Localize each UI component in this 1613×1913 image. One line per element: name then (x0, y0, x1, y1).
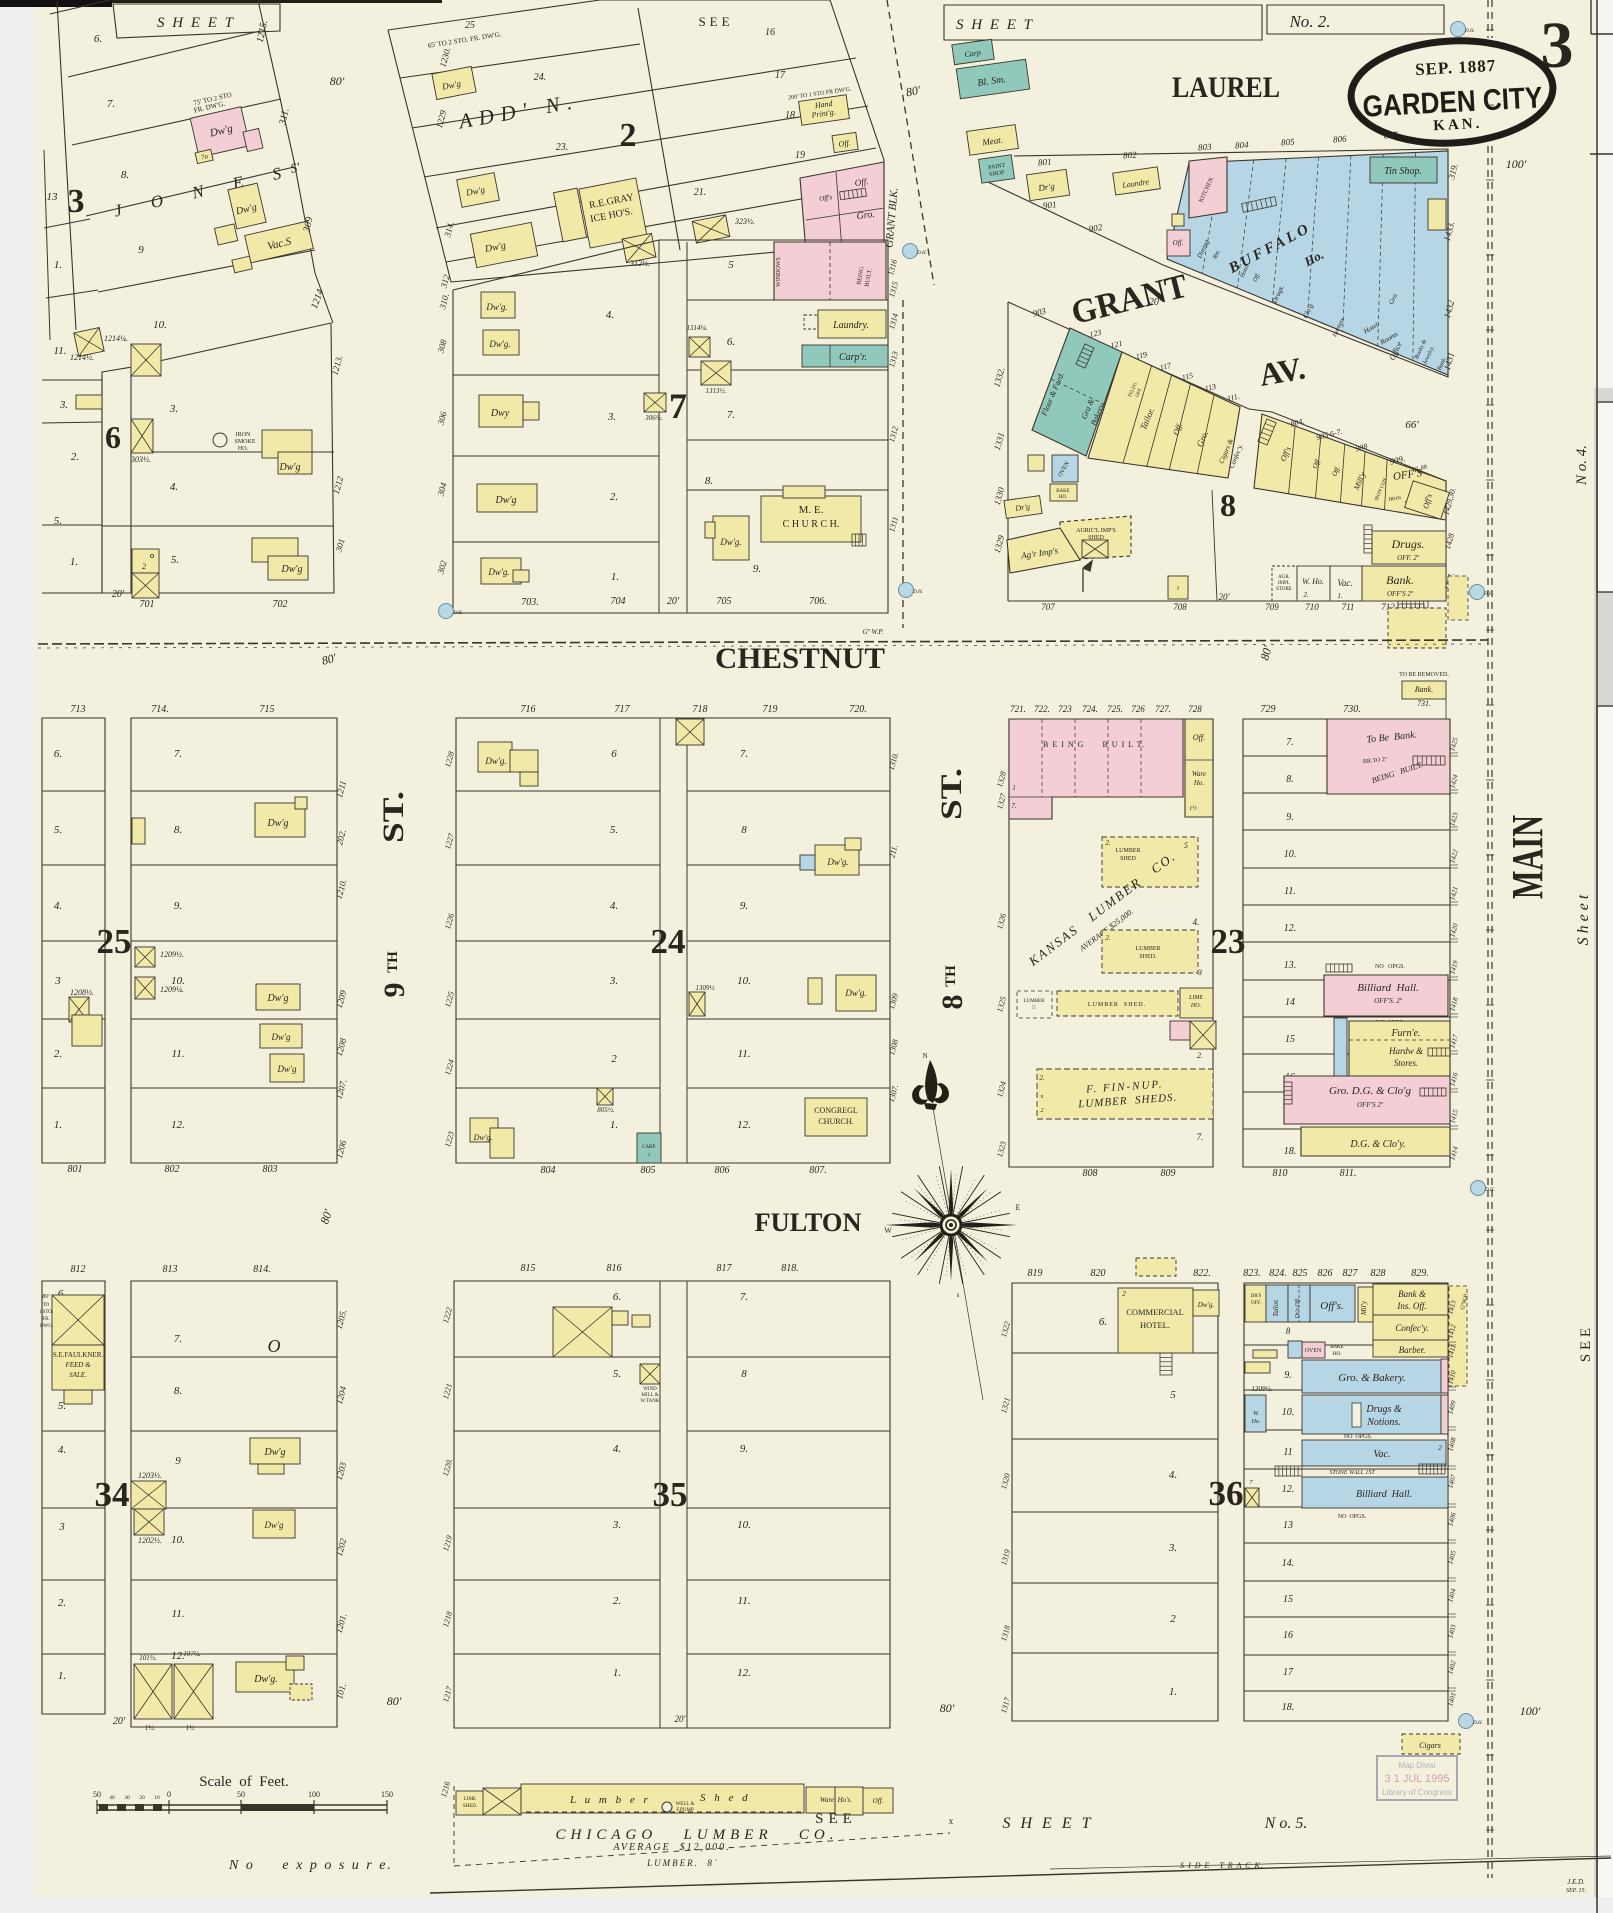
svg-text:6.: 6. (613, 1291, 621, 1303)
svg-text:11.: 11. (172, 1608, 185, 1620)
svg-text:20': 20' (675, 1714, 687, 1724)
svg-text:FULTON: FULTON (755, 1208, 862, 1237)
svg-text:Stores.: Stores. (1394, 1058, 1418, 1068)
svg-text:2.: 2. (1105, 839, 1111, 847)
svg-text:3 1 JUL 1995: 3 1 JUL 1995 (1384, 1773, 1449, 1785)
svg-text:1.: 1. (54, 259, 62, 271)
svg-text:LUMBER. 8´: LUMBER. 8´ (646, 1858, 719, 1868)
svg-text:Drugs &: Drugs & (1365, 1404, 1402, 1415)
svg-text:9.: 9. (740, 900, 748, 912)
svg-text:1208½.: 1208½. (70, 988, 94, 997)
svg-text:Vac.: Vac. (1337, 578, 1352, 588)
svg-text:807.: 807. (809, 1165, 827, 1176)
svg-text:Dw'g.: Dw'g. (487, 567, 509, 577)
svg-text:828: 828 (1371, 1268, 1386, 1279)
svg-text:36: 36 (1209, 1474, 1244, 1513)
svg-text:802: 802 (165, 1164, 180, 1175)
svg-text:7.: 7. (1011, 802, 1017, 810)
svg-text:811.: 811. (1340, 1168, 1357, 1179)
svg-text:7.: 7. (740, 748, 748, 760)
svg-text:STONE WALL 1ST: STONE WALL 1ST (1329, 1470, 1375, 1476)
svg-text:1: 1 (1012, 784, 1016, 792)
svg-text:709: 709 (1265, 602, 1279, 612)
svg-text:1.: 1. (1169, 1686, 1177, 1698)
svg-text:801: 801 (1038, 157, 1052, 168)
svg-text:1.: 1. (54, 1119, 62, 1131)
svg-text:824.: 824. (1269, 1268, 1287, 1279)
svg-text:100': 100' (1520, 1704, 1541, 1718)
svg-text:Bank.: Bank. (1415, 685, 1433, 694)
svg-text:LUMBER SHED.: LUMBER SHED. (1088, 1002, 1146, 1008)
svg-text:2: 2 (1170, 1613, 1176, 1625)
svg-text:2: 2 (142, 562, 146, 571)
svg-text:710: 710 (1305, 602, 1319, 612)
svg-text:CHICAGO LUMBER CO.: CHICAGO LUMBER CO. (556, 1827, 839, 1843)
svg-text:809: 809 (1161, 1168, 1176, 1179)
svg-text:6.: 6. (727, 336, 735, 348)
svg-text:Furn'e.: Furn'e. (1390, 1028, 1420, 1039)
svg-text:25: 25 (465, 20, 475, 31)
svg-text:D.H.: D.H. (1464, 29, 1475, 34)
svg-text:Cigars: Cigars (1419, 1741, 1441, 1750)
svg-text:WELL &: WELL & (676, 1802, 695, 1807)
svg-text:Dw'g: Dw'g (264, 1520, 284, 1530)
svg-text:Ware Ho's.: Ware Ho's. (820, 1796, 853, 1804)
svg-text:Off.: Off. (873, 1797, 884, 1805)
svg-text:S I D E T R A C K.: S I D E T R A C K. (1180, 1861, 1264, 1870)
svg-text:LUMBER: LUMBER (1024, 999, 1046, 1004)
svg-text:10.: 10. (1284, 849, 1297, 860)
svg-text:725.: 725. (1107, 704, 1123, 714)
svg-text:SMOKE: SMOKE (234, 439, 255, 445)
svg-text:D.H.: D.H. (452, 611, 463, 616)
svg-text:817: 817 (717, 1263, 733, 1274)
svg-text:8: 8 (1220, 487, 1236, 523)
svg-text:825: 825 (1293, 1268, 1308, 1279)
svg-text:Dw'g: Dw'g (266, 818, 288, 829)
svg-text:BAKE: BAKE (1330, 1344, 1344, 1350)
svg-text:714.: 714. (151, 704, 169, 715)
svg-text:6.: 6. (94, 33, 102, 45)
svg-text:9: 9 (378, 983, 411, 998)
svg-text:805½.: 805½. (597, 1106, 615, 1114)
svg-text:708: 708 (1173, 602, 1187, 612)
svg-text:2: 2 (1122, 1290, 1126, 1298)
svg-text:S.E.FAULKNER.: S.E.FAULKNER. (53, 1351, 103, 1359)
svg-text:100: 100 (308, 1790, 320, 1799)
svg-text:829.: 829. (1411, 1268, 1429, 1279)
svg-text:23.: 23. (556, 142, 569, 153)
svg-text:1.: 1. (610, 1119, 618, 1131)
svg-text:WIND: WIND (643, 1387, 657, 1392)
svg-text:810: 810 (1273, 1168, 1288, 1179)
svg-text:40: 40 (109, 1795, 115, 1801)
svg-text:W. Ho.: W. Ho. (1302, 577, 1324, 586)
svg-text:s: s (957, 1291, 960, 1299)
svg-text:13: 13 (47, 191, 59, 203)
svg-text:0: 0 (167, 1790, 171, 1799)
svg-text:N o. 5.: N o. 5. (1264, 1815, 1308, 1832)
svg-text:804: 804 (1235, 140, 1250, 151)
svg-text:2.: 2. (1105, 934, 1111, 942)
svg-text:Library of Congress: Library of Congress (1382, 1788, 1452, 1797)
svg-text:Dw'g.: Dw'g. (484, 756, 506, 766)
svg-text:N: N (922, 1052, 927, 1060)
svg-text:N o. 4.: N o. 4. (1574, 445, 1590, 486)
svg-text:Gº W.P.: Gº W.P. (862, 628, 883, 636)
svg-text:5.: 5. (54, 515, 62, 527)
svg-text:30: 30 (124, 1795, 130, 1801)
svg-text:1202½.: 1202½. (138, 1536, 162, 1545)
svg-text:4.: 4. (58, 1444, 66, 1456)
svg-text:1214¼.: 1214¼. (104, 334, 128, 343)
svg-text:x: x (1041, 1094, 1044, 1100)
svg-text:9.: 9. (1284, 1370, 1292, 1381)
svg-text:20: 20 (139, 1795, 145, 1801)
svg-text:820: 820 (1091, 1268, 1106, 1279)
svg-text:804: 804 (541, 1165, 556, 1176)
svg-text:DWG: DWG (40, 1324, 52, 1329)
svg-text:10: 10 (154, 1795, 160, 1801)
svg-text:8: 8 (936, 995, 969, 1010)
svg-text:SEE: SEE (698, 14, 733, 29)
svg-text:OFF'S 2º: OFF'S 2º (1357, 1101, 1384, 1109)
svg-text:4.: 4. (606, 309, 614, 321)
svg-text:1.: 1. (58, 1670, 66, 1682)
svg-text:13.: 13. (1284, 960, 1297, 971)
svg-text:J.E.D.: J.E.D. (1567, 1878, 1585, 1886)
svg-text:Off's.: Off's. (1320, 1300, 1343, 1312)
svg-text:C H U R C H.: C H U R C H. (783, 519, 840, 530)
svg-text:9.: 9. (1286, 812, 1294, 823)
svg-text:BAKE: BAKE (1056, 489, 1070, 494)
svg-text:15: 15 (1283, 1594, 1293, 1605)
svg-text:Off.: Off. (838, 138, 851, 149)
svg-text:16: 16 (765, 27, 775, 38)
svg-text:E: E (1016, 1203, 1021, 1212)
svg-text:713: 713 (71, 704, 86, 715)
svg-text:5: 5 (728, 259, 734, 271)
svg-text:W: W (884, 1226, 892, 1235)
svg-text:Ware: Ware (1192, 770, 1206, 778)
svg-text:705: 705 (717, 596, 732, 607)
svg-text:5': 5' (1032, 1006, 1036, 1011)
svg-text:Map Divisi: Map Divisi (1399, 1761, 1436, 1770)
svg-text:14.: 14. (1282, 1558, 1295, 1569)
svg-text:Billiard Hall.: Billiard Hall. (1357, 982, 1419, 994)
svg-text:1.: 1. (613, 1667, 621, 1679)
svg-text:1313½.: 1313½. (706, 387, 727, 395)
svg-text:711: 711 (1342, 602, 1355, 612)
svg-text:12.: 12. (1282, 1484, 1295, 1495)
svg-text:7.: 7. (740, 1291, 748, 1303)
svg-text:AVERAGE $12,000.: AVERAGE $12,000. (612, 1842, 730, 1853)
svg-text:1209¼.: 1209¼. (160, 985, 184, 994)
svg-text:3: 3 (68, 183, 85, 220)
svg-text:806: 806 (1333, 134, 1348, 145)
svg-text:OFF'S. 2º: OFF'S. 2º (1374, 997, 1403, 1005)
svg-text:3.: 3. (609, 975, 618, 987)
svg-text:Hardw &: Hardw & (1388, 1046, 1423, 1056)
svg-text:1209½.: 1209½. (160, 950, 184, 959)
svg-text:S h e d: S h e d (700, 1792, 751, 1804)
svg-text:3: 3 (1197, 968, 1202, 977)
svg-text:Notions.: Notions. (1366, 1417, 1401, 1428)
svg-text:D.H.: D.H. (1472, 1721, 1483, 1726)
svg-text:24: 24 (651, 922, 686, 961)
svg-text:7.: 7. (727, 409, 735, 421)
svg-text:HO.: HO. (1190, 1003, 1201, 1009)
svg-text:Dw'g.: Dw'g. (473, 1133, 493, 1142)
svg-text:D.H.: D.H. (1484, 1188, 1495, 1193)
svg-text:D.H.: D.H. (916, 251, 927, 256)
svg-text:Dw'g.: Dw'g. (488, 339, 510, 349)
svg-text:3: 3 (54, 975, 61, 987)
svg-text:7: 7 (669, 386, 687, 426)
svg-text:803: 803 (263, 1164, 278, 1175)
svg-text:FR.: FR. (42, 1317, 49, 1322)
svg-text:Vac.: Vac. (1374, 1449, 1391, 1460)
svg-text:Tin Shop.: Tin Shop. (1384, 166, 1422, 177)
svg-text:Ho.: Ho. (1193, 779, 1205, 787)
svg-text:Dw'g.: Dw'g. (1197, 1301, 1215, 1309)
svg-text:Tailor.: Tailor. (1272, 1299, 1280, 1317)
svg-text:21.: 21. (694, 187, 707, 198)
svg-text:D.H.: D.H. (912, 590, 923, 595)
svg-text:SHED: SHED (1120, 856, 1136, 862)
svg-text:2.: 2. (54, 1048, 62, 1060)
svg-text:704: 704 (611, 596, 626, 607)
svg-text:Bank &: Bank & (1398, 1289, 1426, 1299)
svg-text:12.: 12. (737, 1119, 751, 1131)
svg-text:ST.: ST. (935, 768, 968, 820)
svg-text:10.: 10. (737, 975, 751, 987)
svg-text:14: 14 (1285, 997, 1295, 1008)
svg-text:HO.: HO. (1331, 1351, 1341, 1357)
svg-text:7.: 7. (174, 748, 182, 760)
svg-text:7.: 7. (1286, 737, 1294, 748)
svg-text:Barber.: Barber. (1399, 1345, 1426, 1355)
svg-text:827: 827 (1343, 1268, 1359, 1279)
svg-text:N o e x p o s u r e.: N o e x p o s u r e. (228, 1858, 393, 1873)
svg-text:728: 728 (1188, 704, 1202, 714)
svg-text:SEP. 15.: SEP. 15. (1566, 1888, 1586, 1894)
svg-text:STORE: STORE (1276, 587, 1292, 592)
svg-text:312½.: 312½. (629, 259, 650, 268)
svg-text:727.: 727. (1155, 704, 1171, 714)
svg-text:5: 5 (1170, 1389, 1176, 1401)
svg-text:4.: 4. (1169, 1469, 1177, 1481)
svg-text:306½.: 306½. (644, 414, 663, 422)
svg-text:IMPL: IMPL (1278, 581, 1290, 586)
svg-text:815: 815 (521, 1263, 536, 1274)
svg-text:LIME: LIME (464, 1797, 476, 1802)
svg-text:MILL &: MILL & (641, 1393, 658, 1398)
svg-text:MAIN: MAIN (1503, 815, 1552, 899)
svg-text:SALE.: SALE. (69, 1371, 87, 1379)
svg-text:1 STO.: 1 STO. (39, 1310, 53, 1315)
svg-text:Dw'g: Dw'g (266, 993, 288, 1004)
svg-text:LUMBER: LUMBER (1115, 848, 1140, 854)
svg-text:2: 2 (1041, 1108, 1044, 1114)
svg-text:Ho.: Ho. (1251, 1419, 1261, 1425)
svg-text:9: 9 (175, 1455, 181, 1467)
svg-text:17: 17 (1283, 1667, 1294, 1678)
svg-text:16: 16 (1283, 1630, 1293, 1641)
svg-text:HO.: HO. (1059, 495, 1067, 500)
svg-text:724.: 724. (1082, 704, 1098, 714)
svg-text:2.: 2. (613, 1595, 621, 1607)
svg-text:CHESTNUT: CHESTNUT (715, 642, 885, 675)
svg-text:80': 80' (940, 1701, 955, 1715)
svg-text:4.: 4. (1193, 917, 1200, 927)
svg-text:20': 20' (113, 1716, 126, 1727)
svg-text:18.: 18. (1284, 1146, 1297, 1157)
svg-text:Dwy: Dwy (490, 408, 510, 419)
svg-text:13: 13 (1283, 1520, 1293, 1531)
svg-text:TO BE REMOVED.: TO BE REMOVED. (1399, 672, 1449, 678)
svg-text:18.: 18. (1282, 1702, 1295, 1713)
svg-text:11.: 11. (738, 1595, 751, 1607)
svg-text:LAUREL: LAUREL (1172, 71, 1280, 104)
svg-text:10.: 10. (737, 1519, 751, 1531)
svg-text:723: 723 (1058, 704, 1072, 714)
svg-text:703.: 703. (521, 597, 539, 608)
svg-text:LUMBER: LUMBER (1135, 946, 1160, 952)
svg-text:1309½: 1309½ (695, 984, 715, 992)
svg-text:2: 2 (1438, 1444, 1442, 1452)
svg-text:729: 729 (1261, 704, 1276, 715)
svg-text:5.: 5. (613, 1368, 621, 1380)
svg-text:11: 11 (1283, 1447, 1292, 1458)
svg-text:1½: 1½ (186, 1724, 196, 1732)
svg-text:807.: 807. (1384, 129, 1400, 140)
svg-text:2.: 2. (1303, 591, 1309, 599)
svg-text:50: 50 (93, 1790, 101, 1799)
svg-text:25: 25 (97, 922, 132, 961)
svg-text:OFF.: OFF. (1251, 1301, 1261, 1306)
svg-text:803: 803 (1198, 142, 1213, 153)
svg-text:35: 35 (653, 1475, 688, 1514)
svg-text:7.: 7. (1197, 1132, 1204, 1142)
svg-text:806: 806 (715, 1165, 730, 1176)
svg-text:Off.: Off. (1173, 239, 1184, 247)
svg-text:720.: 720. (849, 704, 867, 715)
svg-text:1.: 1. (611, 571, 619, 583)
svg-text:19: 19 (795, 150, 805, 161)
svg-text:323½.: 323½. (734, 217, 755, 226)
svg-text:LIME: LIME (1188, 995, 1203, 1001)
svg-text:TH: TH (385, 951, 401, 973)
svg-text:11.: 11. (54, 345, 67, 357)
svg-text:NO OPGS.: NO OPGS. (1344, 1434, 1373, 1440)
svg-text:2: 2 (611, 1053, 617, 1065)
svg-text:1309½.: 1309½. (1252, 1385, 1273, 1393)
svg-text:11.: 11. (738, 1048, 751, 1060)
svg-text:11.: 11. (172, 1048, 185, 1060)
svg-text:S E E: S E E (1578, 1328, 1594, 1362)
svg-text:812: 812 (71, 1264, 86, 1275)
svg-text:2.: 2. (1197, 1051, 1203, 1060)
svg-text:6.: 6. (54, 748, 62, 760)
svg-text:Drugs.: Drugs. (1390, 537, 1424, 551)
svg-text:706.: 706. (809, 596, 827, 607)
svg-text:Dw'g: Dw'g (494, 495, 516, 506)
svg-text:7.: 7. (174, 1333, 182, 1345)
svg-text:823.: 823. (1243, 1268, 1261, 1279)
svg-text:CARP.: CARP. (642, 1145, 656, 1150)
svg-text:HO.: HO. (238, 446, 249, 452)
svg-text:6: 6 (611, 748, 617, 760)
svg-text:818.: 818. (781, 1263, 799, 1274)
svg-text:DR'S: DR'S (1251, 1294, 1262, 1299)
svg-text:3: 3 (58, 1521, 65, 1533)
svg-text:80': 80' (42, 1294, 50, 1300)
svg-text:731.: 731. (1417, 699, 1431, 708)
svg-text:3.: 3. (169, 403, 178, 415)
svg-text:AGR.: AGR. (1278, 575, 1290, 580)
svg-text:Billiard Hall.: Billiard Hall. (1356, 1489, 1412, 1500)
svg-text:5.: 5. (171, 554, 179, 566)
svg-text:15: 15 (1285, 1034, 1295, 1045)
svg-text:OVEN: OVEN (1305, 1348, 1322, 1354)
svg-text:150: 150 (381, 1790, 393, 1799)
svg-text:L u m b e r: L u m b e r (569, 1794, 651, 1806)
svg-text:101½.: 101½. (139, 1654, 157, 1662)
svg-text:2.: 2. (58, 1597, 66, 1609)
svg-text:20': 20' (1219, 592, 1231, 602)
svg-text:813: 813 (163, 1264, 178, 1275)
svg-text:808: 808 (1083, 1168, 1098, 1179)
svg-text:CONGREGL: CONGREGL (814, 1106, 858, 1115)
svg-text:12.: 12. (1284, 923, 1297, 934)
svg-text:1: 1 (648, 1153, 651, 1158)
svg-text:5.: 5. (610, 824, 618, 836)
svg-text:901: 901 (1042, 199, 1056, 210)
svg-text:7.: 7. (107, 98, 115, 110)
svg-text:2.: 2. (1039, 1074, 1045, 1082)
svg-text:Dw'g: Dw'g (278, 462, 300, 473)
svg-text:OFF'S 2º: OFF'S 2º (1387, 590, 1414, 598)
svg-text:OFF. 2º: OFF. 2º (1397, 554, 1420, 562)
svg-text:801: 801 (68, 1164, 83, 1175)
svg-text:303½.: 303½. (130, 455, 151, 464)
svg-text:4.: 4. (613, 1443, 621, 1455)
svg-text:D.G. & Clo'y.: D.G. & Clo'y. (1349, 1139, 1405, 1150)
svg-text:8.: 8. (174, 824, 182, 836)
svg-text:Mil'y: Mil'y (1360, 1300, 1368, 1316)
svg-text:1314¼.: 1314¼. (687, 324, 708, 332)
svg-text:CHURCH.: CHURCH. (818, 1117, 853, 1126)
svg-text:716: 716 (521, 704, 536, 715)
svg-text:W.TANK: W.TANK (641, 1399, 660, 1404)
svg-text:COMMERCIAL: COMMERCIAL (1126, 1307, 1184, 1317)
svg-text:HOTEL.: HOTEL. (1140, 1320, 1170, 1330)
svg-text:SEE: SEE (815, 1811, 857, 1827)
svg-text:Dr's Off.: Dr's Off. (1294, 1298, 1301, 1320)
svg-text:NO OPGS.: NO OPGS. (1375, 964, 1406, 970)
svg-text:5.: 5. (54, 824, 62, 836)
svg-text:TH: TH (943, 965, 959, 987)
svg-text:719: 719 (763, 704, 778, 715)
svg-text:Laundry.: Laundry. (832, 320, 869, 331)
svg-text:726: 726 (1131, 704, 1145, 714)
svg-text:722.: 722. (1034, 704, 1050, 714)
svg-text:FEED &: FEED & (64, 1361, 91, 1369)
svg-text:1½: 1½ (1189, 805, 1197, 812)
svg-text:No. 2.: No. 2. (1288, 12, 1330, 31)
svg-text:1.: 1. (1337, 592, 1343, 600)
